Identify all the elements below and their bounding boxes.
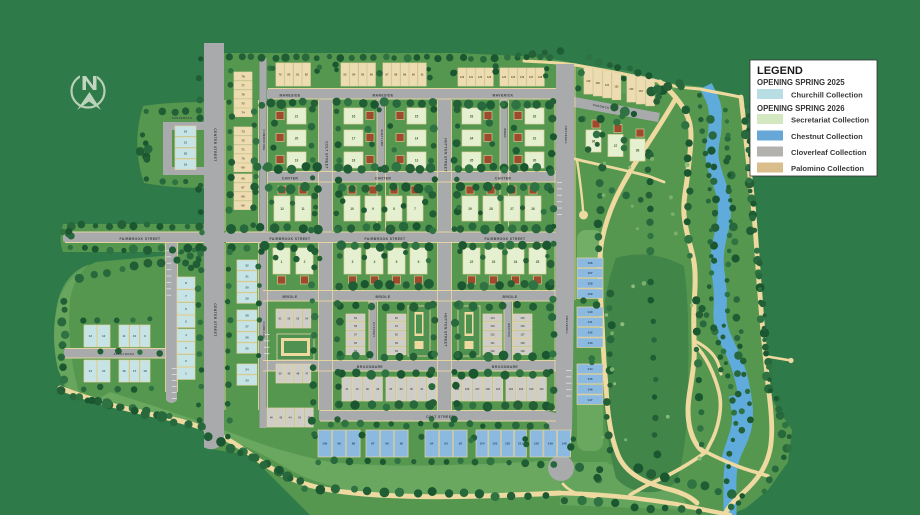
- svg-text:Chestnut Collection: Chestnut Collection: [791, 132, 863, 141]
- svg-text:GROVEHILL: GROVEHILL: [565, 316, 569, 335]
- svg-text:4: 4: [374, 260, 376, 264]
- svg-text:FAIRBROOK STREET: FAIRBROOK STREET: [269, 237, 311, 241]
- svg-text:OPENING SPRING 2025: OPENING SPRING 2025: [757, 78, 845, 87]
- svg-text:26: 26: [245, 335, 249, 339]
- svg-text:132: 132: [614, 86, 619, 89]
- svg-text:OPENING SPRING 2026: OPENING SPRING 2026: [757, 104, 845, 113]
- svg-text:CENTER STREET: CENTER STREET: [213, 303, 217, 337]
- svg-text:101: 101: [539, 387, 544, 391]
- svg-text:BRIDLE: BRIDLE: [502, 295, 517, 299]
- svg-text:GROVEHILL: GROVEHILL: [564, 126, 568, 145]
- svg-text:91: 91: [421, 73, 424, 77]
- svg-text:COLT STREET: COLT STREET: [325, 141, 329, 169]
- svg-text:31: 31: [245, 274, 249, 278]
- svg-text:WREN: WREN: [503, 128, 507, 138]
- svg-text:20: 20: [184, 152, 188, 156]
- svg-text:104: 104: [509, 387, 514, 391]
- svg-text:33: 33: [470, 115, 474, 119]
- svg-text:Churchill Collection: Churchill Collection: [791, 91, 863, 100]
- svg-text:133: 133: [629, 88, 634, 91]
- svg-text:73: 73: [241, 129, 245, 133]
- svg-text:95: 95: [400, 442, 404, 446]
- svg-text:84: 84: [352, 73, 355, 77]
- svg-text:18: 18: [352, 159, 356, 163]
- svg-text:23: 23: [492, 260, 496, 264]
- svg-text:65: 65: [241, 204, 245, 208]
- svg-text:38: 38: [636, 149, 640, 153]
- svg-text:87: 87: [386, 73, 389, 77]
- svg-text:BROODMARE: BROODMARE: [492, 365, 519, 369]
- svg-text:146: 146: [587, 388, 592, 392]
- svg-text:117: 117: [520, 333, 525, 337]
- svg-text:118: 118: [520, 341, 525, 345]
- svg-text:17: 17: [133, 369, 137, 373]
- svg-text:103: 103: [519, 387, 524, 391]
- svg-text:150: 150: [534, 442, 539, 446]
- svg-text:APPALOOSA: APPALOOSA: [113, 352, 134, 356]
- svg-text:110: 110: [490, 349, 495, 353]
- svg-text:141: 141: [587, 320, 592, 324]
- svg-text:5: 5: [396, 260, 398, 264]
- svg-text:108: 108: [465, 387, 470, 391]
- svg-text:80: 80: [287, 73, 290, 77]
- svg-text:127: 127: [529, 76, 534, 79]
- svg-text:122: 122: [478, 76, 483, 79]
- svg-text:119: 119: [520, 349, 525, 353]
- svg-text:MARESIDE: MARESIDE: [372, 94, 393, 98]
- svg-text:85: 85: [361, 73, 364, 77]
- svg-text:1: 1: [281, 260, 283, 264]
- svg-text:10: 10: [133, 334, 137, 338]
- svg-text:152: 152: [505, 442, 510, 446]
- svg-text:9: 9: [372, 207, 374, 211]
- svg-text:88: 88: [394, 73, 397, 77]
- svg-text:20: 20: [295, 137, 299, 141]
- svg-text:32: 32: [245, 263, 249, 267]
- svg-text:29: 29: [245, 296, 249, 300]
- svg-text:29: 29: [468, 207, 472, 211]
- svg-text:148: 148: [562, 442, 567, 446]
- svg-text:137: 137: [587, 271, 592, 275]
- svg-text:FAIRBROOK STREET: FAIRBROOK STREET: [119, 237, 161, 241]
- svg-text:76: 76: [241, 93, 245, 97]
- svg-text:26: 26: [531, 207, 535, 211]
- svg-text:79: 79: [279, 73, 282, 77]
- svg-text:31: 31: [533, 137, 537, 141]
- svg-text:97: 97: [371, 442, 375, 446]
- svg-text:25: 25: [245, 346, 249, 350]
- svg-text:BRIDLE: BRIDLE: [282, 295, 297, 299]
- svg-text:MARESIDE: MARESIDE: [279, 94, 300, 98]
- svg-text:PASSKEY: PASSKEY: [372, 322, 376, 337]
- svg-text:17: 17: [352, 137, 356, 141]
- svg-text:151: 151: [518, 442, 523, 446]
- svg-text:Cloverleaf Collection: Cloverleaf Collection: [791, 148, 867, 157]
- svg-text:143: 143: [587, 341, 592, 345]
- svg-text:66: 66: [241, 195, 245, 199]
- svg-text:CENTER STREET: CENTER STREET: [213, 128, 217, 162]
- svg-text:BROODMARE: BROODMARE: [357, 365, 384, 369]
- svg-text:3: 3: [352, 260, 354, 264]
- svg-text:CANTER: CANTER: [375, 177, 392, 181]
- svg-text:23: 23: [245, 378, 249, 382]
- svg-text:96: 96: [385, 442, 389, 446]
- svg-text:HUTTON STREET: HUTTON STREET: [444, 313, 448, 347]
- svg-text:16: 16: [122, 369, 126, 373]
- svg-text:92: 92: [459, 442, 463, 446]
- svg-text:19: 19: [184, 163, 188, 167]
- svg-text:8: 8: [393, 207, 395, 211]
- svg-text:25: 25: [536, 260, 540, 264]
- svg-text:15: 15: [102, 369, 106, 373]
- svg-text:14: 14: [89, 369, 93, 373]
- svg-text:19: 19: [295, 159, 299, 163]
- svg-text:86: 86: [370, 73, 373, 77]
- svg-text:COMMODORE: COMMODORE: [262, 129, 266, 150]
- svg-text:124: 124: [502, 76, 507, 79]
- svg-text:13: 13: [415, 159, 419, 163]
- svg-text:126: 126: [520, 76, 525, 79]
- svg-text:30: 30: [533, 159, 537, 163]
- svg-text:140: 140: [587, 310, 592, 314]
- svg-text:145: 145: [587, 377, 592, 381]
- svg-text:93: 93: [444, 442, 448, 446]
- svg-text:COLT STREET: COLT STREET: [426, 415, 454, 419]
- svg-text:78: 78: [241, 74, 245, 78]
- svg-text:77: 77: [241, 84, 245, 88]
- svg-text:74: 74: [241, 111, 245, 115]
- svg-text:MAVERICK: MAVERICK: [492, 94, 513, 98]
- svg-text:SHETLAND: SHETLAND: [380, 129, 384, 146]
- svg-text:69: 69: [241, 166, 245, 170]
- svg-text:131: 131: [605, 84, 610, 87]
- svg-text:12: 12: [102, 334, 106, 338]
- svg-text:24: 24: [245, 367, 249, 371]
- svg-text:154: 154: [479, 442, 484, 446]
- svg-text:114: 114: [490, 316, 495, 320]
- svg-text:125: 125: [511, 76, 516, 79]
- svg-text:71: 71: [241, 148, 245, 152]
- svg-text:136: 136: [587, 261, 592, 265]
- svg-text:139: 139: [587, 292, 592, 296]
- svg-text:24: 24: [514, 260, 518, 264]
- svg-text:153: 153: [492, 442, 497, 446]
- svg-text:130: 130: [596, 82, 601, 85]
- svg-text:28: 28: [489, 207, 493, 211]
- svg-text:11: 11: [301, 207, 305, 211]
- svg-text:WESTON: WESTON: [507, 323, 511, 337]
- svg-text:107: 107: [475, 387, 480, 391]
- svg-text:32: 32: [533, 115, 537, 119]
- svg-text:LEGEND: LEGEND: [757, 65, 803, 77]
- svg-text:70: 70: [241, 157, 245, 161]
- svg-text:21: 21: [184, 140, 188, 144]
- svg-text:89: 89: [403, 73, 406, 77]
- svg-text:Palomino Collection: Palomino Collection: [791, 164, 864, 173]
- svg-text:120: 120: [460, 76, 465, 79]
- svg-text:37: 37: [614, 144, 618, 148]
- svg-text:100: 100: [322, 442, 327, 446]
- svg-text:16: 16: [352, 115, 356, 119]
- svg-text:113: 113: [490, 324, 495, 328]
- svg-text:35: 35: [470, 159, 474, 163]
- svg-text:FAIRBROOK STREET: FAIRBROOK STREET: [484, 237, 526, 241]
- svg-text:134: 134: [639, 90, 644, 93]
- svg-text:111: 111: [490, 341, 495, 345]
- svg-text:99: 99: [337, 442, 341, 446]
- svg-text:12: 12: [280, 207, 284, 211]
- svg-text:83: 83: [344, 73, 347, 77]
- svg-text:27: 27: [510, 207, 514, 211]
- svg-text:CANTER: CANTER: [495, 177, 512, 181]
- svg-text:FAIRBROOK STREET: FAIRBROOK STREET: [364, 237, 406, 241]
- svg-text:34: 34: [470, 137, 474, 141]
- svg-text:90: 90: [412, 73, 415, 77]
- svg-text:15: 15: [415, 115, 419, 119]
- svg-text:121: 121: [469, 76, 474, 79]
- svg-text:7: 7: [414, 207, 416, 211]
- svg-text:149: 149: [548, 442, 553, 446]
- svg-text:98: 98: [352, 442, 356, 446]
- svg-text:72: 72: [241, 138, 245, 142]
- svg-text:HUTTON STREET: HUTTON STREET: [444, 138, 448, 172]
- svg-text:81: 81: [296, 73, 299, 77]
- svg-text:18: 18: [143, 369, 147, 373]
- svg-text:115: 115: [520, 316, 525, 320]
- svg-text:13: 13: [89, 334, 93, 338]
- svg-text:128: 128: [538, 76, 543, 79]
- svg-text:144: 144: [587, 367, 592, 371]
- svg-text:CANTER: CANTER: [282, 177, 299, 181]
- svg-text:102: 102: [529, 387, 534, 391]
- svg-text:6: 6: [418, 260, 420, 264]
- svg-text:129: 129: [586, 80, 591, 83]
- svg-text:BRIDLE: BRIDLE: [375, 295, 390, 299]
- svg-text:36: 36: [592, 140, 596, 144]
- svg-text:112: 112: [490, 333, 495, 337]
- svg-text:116: 116: [520, 324, 525, 328]
- svg-text:142: 142: [587, 331, 592, 335]
- svg-text:2: 2: [304, 260, 306, 264]
- svg-text:28: 28: [245, 313, 249, 317]
- svg-text:106: 106: [486, 387, 491, 391]
- svg-text:82: 82: [305, 73, 308, 77]
- svg-text:105: 105: [496, 387, 501, 391]
- svg-text:CARRIAGE: CARRIAGE: [262, 321, 266, 338]
- svg-text:14: 14: [415, 137, 419, 141]
- svg-text:67: 67: [241, 185, 245, 189]
- svg-text:22: 22: [184, 129, 188, 133]
- svg-text:Secretariat Collection: Secretariat Collection: [791, 116, 869, 125]
- svg-text:11: 11: [122, 334, 126, 338]
- svg-text:147: 147: [587, 398, 592, 402]
- svg-text:22: 22: [470, 260, 474, 264]
- svg-text:123: 123: [487, 76, 492, 79]
- svg-text:68: 68: [241, 176, 245, 180]
- svg-text:27: 27: [245, 324, 249, 328]
- svg-text:75: 75: [241, 102, 245, 106]
- svg-text:10: 10: [350, 207, 354, 211]
- svg-text:138: 138: [587, 282, 592, 286]
- svg-text:94: 94: [430, 442, 434, 446]
- svg-text:21: 21: [295, 115, 299, 119]
- svg-text:SHOREWALK: SHOREWALK: [172, 116, 192, 120]
- svg-text:30: 30: [245, 285, 249, 289]
